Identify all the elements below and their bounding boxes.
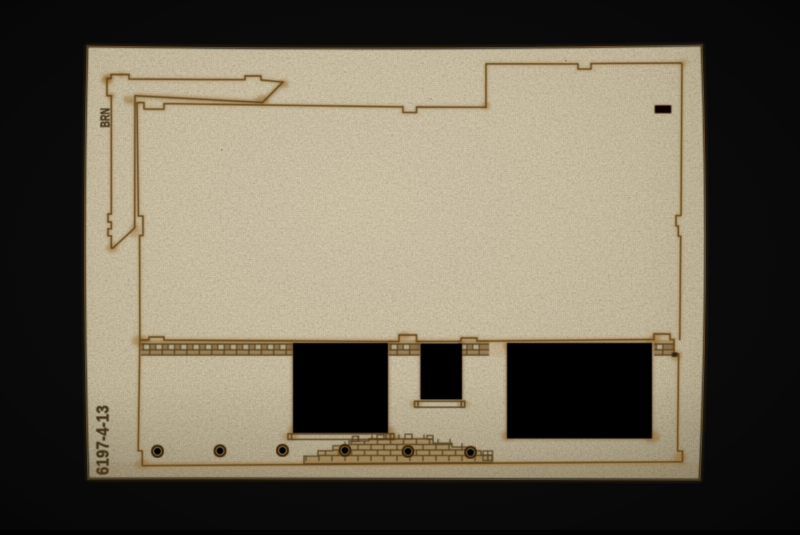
svg-text:BRN: BRN	[99, 108, 113, 128]
